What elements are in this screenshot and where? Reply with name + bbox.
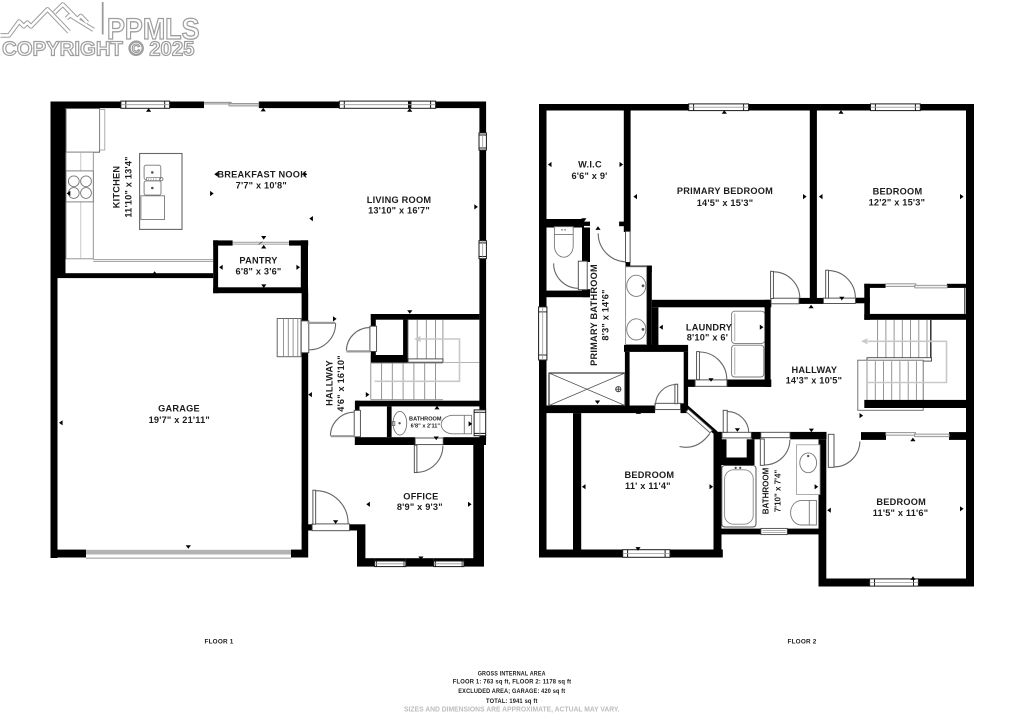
svg-text:7'7" x 10'8": 7'7" x 10'8": [236, 180, 287, 190]
svg-text:BATHROOM: BATHROOM: [762, 467, 771, 514]
svg-text:11'10" x 13'4": 11'10" x 13'4": [124, 156, 134, 217]
svg-text:HALLWAY: HALLWAY: [791, 365, 837, 375]
svg-text:GARAGE: GARAGE: [158, 404, 200, 414]
svg-text:LIVING ROOM: LIVING ROOM: [367, 195, 432, 205]
svg-text:13'10" x 16'7": 13'10" x 16'7": [368, 206, 430, 216]
svg-text:GROSS INTERNAL AREA: GROSS INTERNAL AREA: [478, 670, 546, 677]
svg-text:6'6" x 9': 6'6" x 9': [571, 171, 607, 181]
svg-text:11'5" x 11'6": 11'5" x 11'6": [873, 508, 929, 518]
svg-text:BEDROOM: BEDROOM: [873, 187, 923, 197]
svg-text:12'2" x 15'3": 12'2" x 15'3": [869, 198, 926, 208]
svg-text:PANTRY: PANTRY: [239, 256, 277, 266]
svg-text:FLOOR 1: 763 sq ft, FLOOR 2: 1: FLOOR 1: 763 sq ft, FLOOR 2: 1178 sq ft: [453, 678, 572, 685]
svg-text:BEDROOM: BEDROOM: [625, 470, 675, 480]
svg-text:14'5" x 15'3": 14'5" x 15'3": [697, 198, 754, 208]
svg-text:4'6" x 16'10": 4'6" x 16'10": [336, 355, 346, 412]
svg-text:8'3" x 14'6": 8'3" x 14'6": [601, 289, 611, 340]
svg-text:7'10" x 7'4": 7'10" x 7'4": [773, 470, 782, 513]
svg-text:SIZES AND DIMENSIONS ARE APPRO: SIZES AND DIMENSIONS ARE APPROXIMATE, AC…: [404, 704, 620, 713]
svg-text:8'10" x 6': 8'10" x 6': [687, 333, 728, 343]
svg-text:HALLWAY: HALLWAY: [325, 360, 335, 406]
svg-text:KITCHEN: KITCHEN: [112, 166, 122, 209]
svg-text:FLOOR 1: FLOOR 1: [205, 639, 234, 646]
svg-text:BATHROOM: BATHROOM: [409, 417, 442, 423]
svg-text:PRIMARY BATHROOM: PRIMARY BATHROOM: [589, 264, 599, 366]
svg-text:LAUNDRY: LAUNDRY: [686, 323, 732, 333]
svg-text:W.I.C: W.I.C: [578, 160, 602, 170]
svg-text:PRIMARY BEDROOM: PRIMARY BEDROOM: [677, 186, 773, 196]
svg-text:19'7" x 21'11": 19'7" x 21'11": [149, 415, 210, 425]
svg-text:BEDROOM: BEDROOM: [876, 497, 926, 507]
svg-text:EXCLUDED AREA; GARAGE: 420 sq: EXCLUDED AREA; GARAGE: 420 sq ft: [458, 688, 566, 695]
svg-text:OFFICE: OFFICE: [403, 492, 438, 502]
svg-text:BREAKFAST NOOK: BREAKFAST NOOK: [217, 170, 307, 180]
svg-text:FLOOR 2: FLOOR 2: [788, 639, 817, 646]
svg-text:6'8" x 2'11": 6'8" x 2'11": [411, 423, 441, 429]
svg-text:6'8" x 3'6": 6'8" x 3'6": [236, 266, 282, 276]
svg-text:11' x 11'4": 11' x 11'4": [625, 481, 671, 491]
svg-text:8'9" x 9'3": 8'9" x 9'3": [397, 502, 443, 512]
svg-text:COPYRIGHT © 2025: COPYRIGHT © 2025: [2, 39, 195, 61]
svg-text:14'3" x 10'5": 14'3" x 10'5": [786, 376, 843, 386]
